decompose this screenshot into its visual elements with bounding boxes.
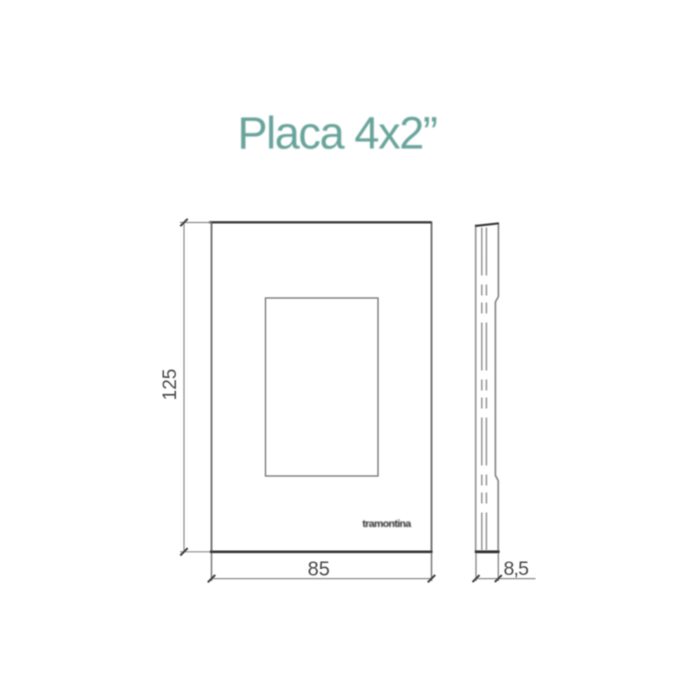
svg-text:tramontina: tramontina (362, 518, 411, 530)
svg-text:125: 125 (160, 369, 181, 401)
svg-text:85: 85 (308, 559, 330, 581)
svg-text:8,5: 8,5 (504, 558, 530, 580)
svg-text:Placa 4x2”: Placa 4x2” (237, 108, 436, 159)
